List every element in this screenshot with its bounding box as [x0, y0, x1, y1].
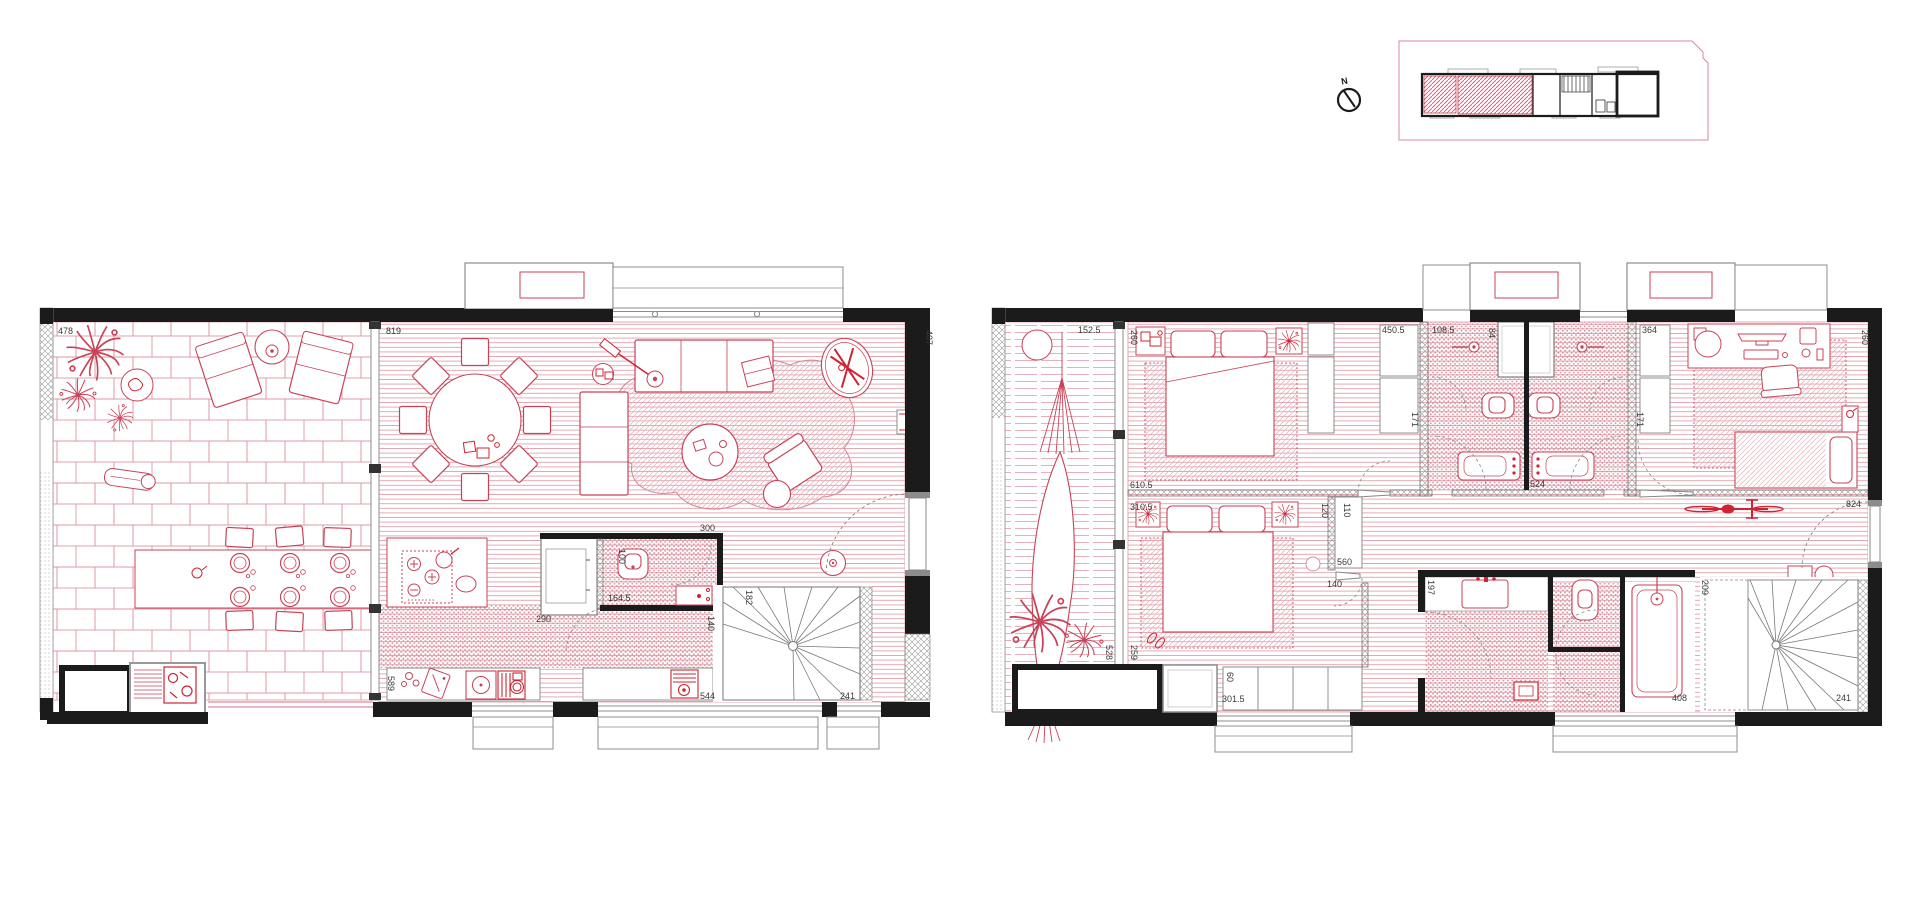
dim-197: 197	[1426, 580, 1436, 595]
terrace-side-table	[121, 369, 153, 401]
kitchen-island	[387, 538, 487, 607]
single-bed	[1735, 432, 1857, 488]
bbq-grill-icon	[164, 667, 196, 703]
pouf	[764, 481, 791, 508]
dim-260b: 260	[1860, 330, 1870, 345]
dim-610-5: 610.5	[1130, 480, 1153, 490]
dim-209: 209	[1700, 580, 1710, 595]
balcony-planter	[1015, 665, 1217, 712]
desk-chair	[1759, 364, 1801, 397]
dim-182: 182	[744, 590, 754, 605]
dim-110: 110	[1342, 503, 1352, 517]
dim-241: 241	[1836, 693, 1851, 703]
dim-60: 60	[1225, 672, 1235, 682]
floor-plan-drawing: 478 819 407 300 100 164.5 290 140 182 58…	[0, 0, 1920, 900]
dim-301-5: 301.5	[1222, 694, 1245, 704]
glass-partition	[369, 322, 381, 700]
main-bathroom	[1418, 570, 1695, 712]
balcony-stool	[1022, 330, 1052, 360]
dim-528: 528	[1104, 645, 1114, 660]
key-plan	[1399, 41, 1708, 140]
dim-171b: 171	[1635, 412, 1645, 427]
key-unit-highlight	[1458, 76, 1532, 114]
side-table	[593, 364, 614, 385]
dim-171a: 171	[1410, 412, 1420, 427]
dim-824: 824	[1846, 499, 1861, 509]
dim-408: 408	[1672, 693, 1687, 703]
dim-100: 100	[617, 549, 627, 564]
plant-box	[1276, 328, 1302, 354]
upper-floor-plan: 152.5 260 450.5 108.5 84 364 260 171 171…	[992, 263, 1882, 752]
lower-floor-plan: 478 819 407 300 100 164.5 290 140 182 58…	[40, 263, 934, 749]
dim-364: 364	[1642, 325, 1657, 335]
dim-152-5: 152.5	[1078, 325, 1101, 335]
nightstand	[1842, 406, 1858, 432]
bathtub-icon	[1632, 577, 1682, 697]
dim-84: 84	[1487, 328, 1497, 338]
pedestal-table	[821, 551, 846, 576]
dim-407: 407	[924, 330, 934, 345]
dim-290: 290	[536, 614, 551, 624]
dim-560: 560	[1337, 557, 1352, 567]
patio-heater	[255, 330, 289, 364]
dim-524: 524	[1530, 479, 1545, 489]
kitchen-counter	[387, 668, 540, 700]
north-label: N	[1340, 76, 1348, 87]
utility-counter	[583, 668, 713, 700]
dim-310-5: 310.5	[1130, 502, 1153, 512]
dim-164-5: 164.5	[608, 593, 631, 603]
dim-108-5: 108.5	[1432, 325, 1455, 335]
north-indicator: N	[1338, 76, 1360, 111]
dim-140: 140	[1327, 579, 1342, 589]
dim-120: 120	[1320, 503, 1330, 518]
wardrobe	[1308, 323, 1334, 433]
dim-589: 589	[386, 676, 396, 691]
bathroom-sink-icon	[676, 586, 712, 605]
stool	[1695, 331, 1721, 357]
key-unit-highlight	[1424, 76, 1456, 113]
dim-241: 241	[840, 691, 855, 701]
dim-300: 300	[700, 523, 715, 533]
dim-478: 478	[58, 326, 73, 336]
coffee-table	[682, 424, 738, 480]
plant-box	[1272, 502, 1298, 527]
dim-544: 544	[700, 691, 715, 701]
dim-819: 819	[386, 326, 401, 336]
ceiling-light	[1306, 557, 1320, 571]
stairs-lower	[713, 585, 872, 702]
stairs-upper	[1700, 577, 1868, 712]
hall-closet	[541, 537, 597, 615]
dim-450-5: 450.5	[1382, 325, 1405, 335]
toilet-icon	[1572, 580, 1598, 620]
dim-259: 259	[1129, 645, 1139, 660]
dim-140: 140	[706, 616, 716, 631]
dim-260a: 260	[1129, 330, 1139, 345]
architectural-drawing-canvas: 478 819 407 300 100 164.5 290 140 182 58…	[0, 0, 1920, 900]
key-building-outline	[1422, 74, 1658, 116]
